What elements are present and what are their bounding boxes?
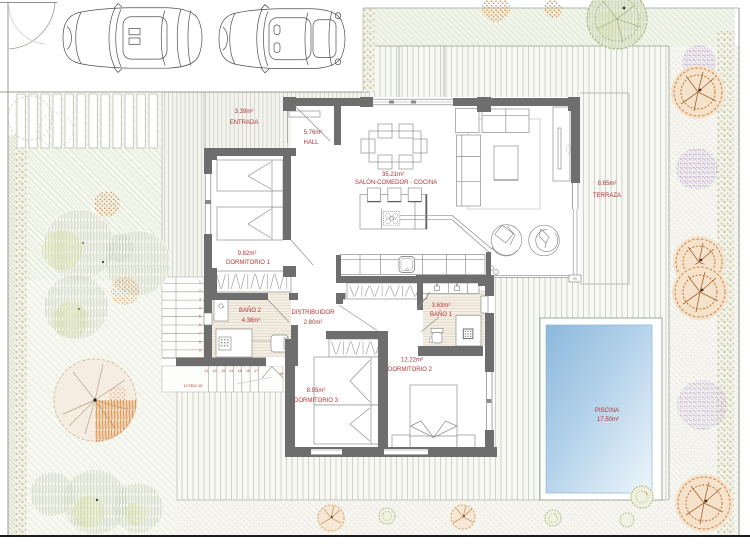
svg-text:2.80m²: 2.80m²	[304, 320, 323, 326]
svg-text:9: 9	[199, 349, 201, 353]
svg-text:13: 13	[221, 369, 225, 373]
svg-text:35.21m²: 35.21m²	[382, 172, 404, 178]
svg-text:18: 18	[279, 372, 283, 376]
svg-text:11: 11	[205, 369, 209, 373]
svg-text:9.82m²: 9.82m²	[238, 251, 257, 257]
svg-text:4: 4	[199, 306, 201, 310]
svg-text:12.22m²: 12.22m²	[401, 358, 423, 364]
svg-text:DORMITORIO 2: DORMITORIO 2	[388, 367, 433, 373]
svg-text:SALÓN-COMEDOR - COCINA: SALÓN-COMEDOR - COCINA	[355, 179, 437, 186]
svg-text:5.76m²: 5.76m²	[304, 130, 323, 136]
svg-text:14: 14	[229, 369, 233, 373]
svg-text:16: 16	[246, 369, 250, 373]
svg-text:12: 12	[213, 369, 217, 373]
svg-text:17: 17	[254, 369, 258, 373]
svg-text:DISTRIBUIDOR: DISTRIBUIDOR	[291, 310, 335, 316]
svg-text:BAÑO 2: BAÑO 2	[239, 307, 262, 314]
svg-text:2: 2	[199, 289, 201, 293]
svg-text:1: 1	[199, 280, 201, 284]
svg-text:6: 6	[199, 323, 201, 327]
svg-text:10: 10	[198, 357, 202, 361]
svg-text:3.63m²: 3.63m²	[432, 303, 451, 309]
svg-text:PISCINA: PISCINA	[595, 408, 619, 414]
svg-text:7: 7	[199, 332, 201, 336]
svg-text:17.50m²: 17.50m²	[597, 417, 619, 423]
svg-text:3.39m²: 3.39m²	[235, 109, 254, 115]
svg-text:8.95m²: 8.95m²	[307, 388, 326, 394]
svg-text:TERRAZA: TERRAZA	[593, 193, 621, 199]
svg-text:H: H	[573, 277, 576, 282]
svg-text:5: 5	[199, 314, 201, 318]
svg-text:DORMITORIO 3: DORMITORIO 3	[294, 398, 339, 404]
svg-text:3: 3	[199, 297, 201, 301]
svg-text:15: 15	[238, 369, 242, 373]
svg-text:8: 8	[199, 340, 201, 344]
svg-text:10 T30/C 18: 10 T30/C 18	[184, 384, 203, 388]
svg-text:c: c	[222, 304, 224, 309]
svg-text:DORMITORIO 1: DORMITORIO 1	[226, 260, 271, 266]
svg-text:BAÑO 1: BAÑO 1	[430, 311, 453, 318]
svg-text:4.38m²: 4.38m²	[242, 318, 261, 324]
svg-text:ENTRADA: ENTRADA	[230, 120, 259, 126]
svg-text:8.65m²: 8.65m²	[598, 181, 617, 187]
svg-text:HALL: HALL	[303, 140, 319, 146]
